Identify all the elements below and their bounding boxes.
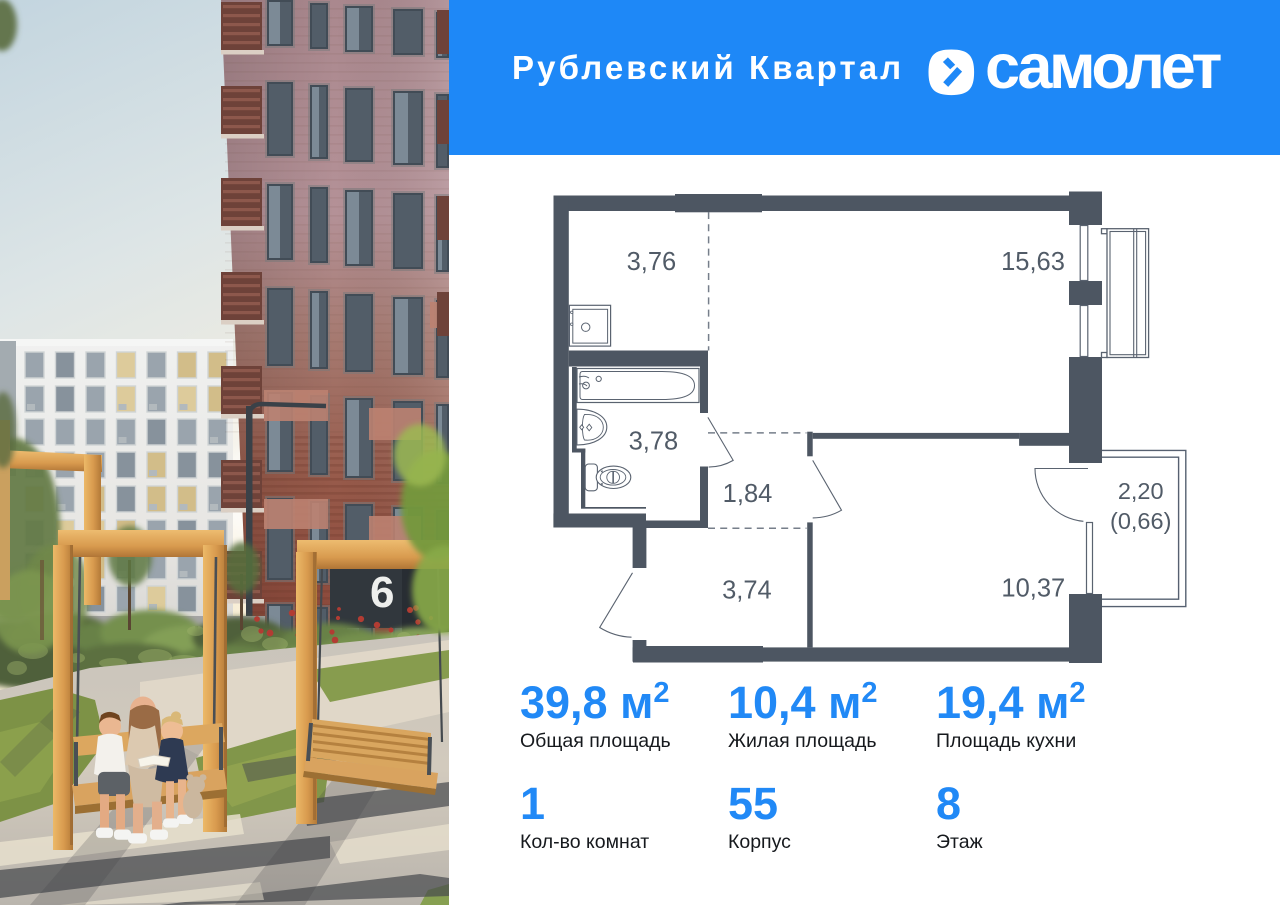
svg-text:3,76: 3,76	[627, 248, 677, 276]
svg-text:6: 6	[370, 568, 394, 617]
svg-text:3,78: 3,78	[629, 428, 679, 456]
svg-text:2,20: 2,20	[1118, 478, 1164, 504]
svg-text:15,63: 15,63	[1001, 248, 1065, 276]
svg-text:3,74: 3,74	[722, 577, 772, 605]
svg-text:1,84: 1,84	[723, 480, 773, 508]
svg-text:(0,66): (0,66)	[1110, 508, 1171, 534]
svg-text:10,37: 10,37	[1001, 575, 1065, 603]
